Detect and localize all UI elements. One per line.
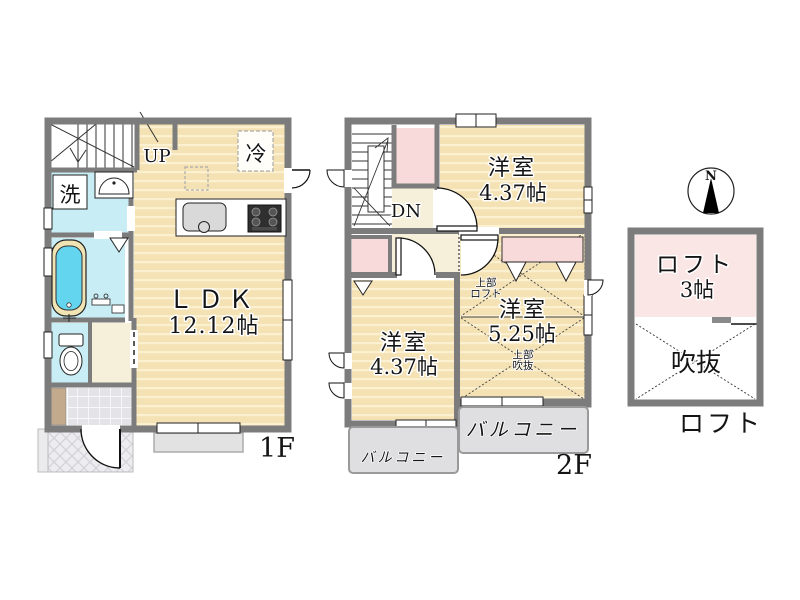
floor-1f-plan: 洗 冷 UP ＬＤＫ 12.12帖 1F (38, 112, 310, 472)
compass: N (688, 168, 734, 214)
loft-room-name: ロフト (656, 252, 734, 278)
stove (248, 205, 281, 232)
bedroom-left-name: 洋室 (380, 331, 428, 356)
fridge-label: 冷 (246, 142, 267, 166)
loft-edge-post (712, 317, 731, 323)
bedroom-top-name: 洋室 (488, 156, 536, 181)
stairs-dn-label: DN (391, 201, 421, 222)
bedroom-top-size: 4.37帖 (479, 181, 547, 205)
bedroom-right-size: 5.25帖 (488, 322, 556, 346)
loft-room-size: 3帖 (680, 278, 714, 302)
void-label: 吹抜 (671, 348, 721, 377)
upper-loft-label-2: ロフト (470, 288, 502, 300)
entrance-genkan (68, 388, 134, 425)
vanity-sink (95, 172, 133, 198)
bathtub (52, 240, 86, 322)
stairs-up-label: UP (143, 146, 170, 167)
bedroom-left-size: 4.37帖 (370, 355, 438, 379)
ldk-size: 12.12帖 (169, 314, 260, 339)
floor-2f-plan: DN 洋室 4.37帖 洋室 4.37帖 洋室 5.25帖 上部 ロフト 上部 … (327, 114, 603, 481)
floor-1f-caption: 1F (259, 433, 295, 464)
terrace-step (154, 433, 243, 452)
ldk-name: ＬＤＫ (168, 285, 258, 314)
bedroom-right-name: 洋室 (499, 298, 547, 323)
hallway-1f (90, 323, 134, 385)
balcony-left-label: バルコニー (360, 450, 449, 466)
upper-void-label-2: 吹抜 (513, 359, 534, 372)
loft-caption: ロフト (679, 409, 763, 438)
hallway-2f-east (437, 231, 459, 278)
kitchen-side-door (292, 170, 310, 188)
closet-mid (352, 237, 390, 272)
floor-plan-drawing: 洗 冷 UP ＬＤＫ 12.12帖 1F (0, 0, 800, 600)
floor-2f-caption: 2F (556, 450, 592, 481)
toilet (59, 334, 83, 375)
kitchen-counter (176, 199, 286, 236)
closet-top (395, 128, 435, 186)
floor-plan-canvas: 洗 冷 UP ＬＤＫ 12.12帖 1F (0, 0, 800, 600)
wash-label: 洗 (60, 183, 81, 207)
loft-plan: ロフト 3帖 吹抜 ロフト (631, 231, 763, 438)
balcony-right-label: バルコニー (464, 418, 584, 441)
compass-north-label: N (705, 169, 717, 184)
